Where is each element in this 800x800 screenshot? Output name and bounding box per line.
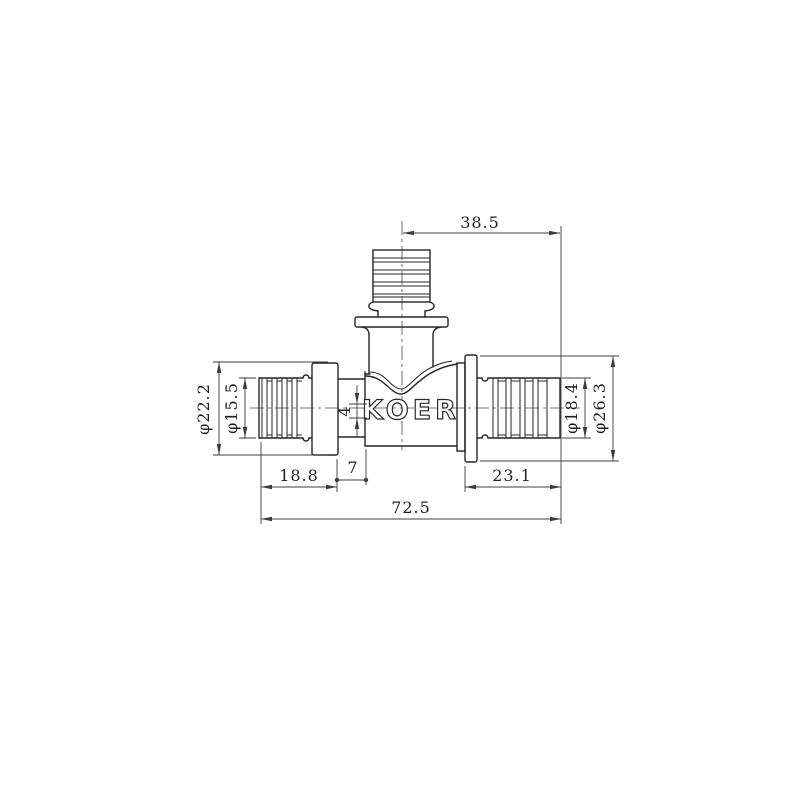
dim-left-outer-diameter: φ22.2 [194, 362, 221, 455]
dim-right-insert-length: 23.1 [465, 466, 561, 489]
dim-label-right-insert-diameter: φ18.4 [562, 382, 581, 434]
top-branch-walls [362, 327, 441, 374]
dim-left-insert-length: 18.8 [261, 466, 337, 489]
dim-label-top-branch-offset: 38.5 [460, 213, 500, 232]
brand-embossed-text: KOER [362, 395, 460, 426]
top-branch-neck [369, 302, 434, 317]
dim-overall-length: 72.5 [261, 498, 561, 521]
dim-label-left-outer-diameter: φ22.2 [194, 383, 213, 435]
dim-label-left-neck-length: 7 [347, 458, 358, 477]
dim-right-outer-diameter: φ26.3 [590, 356, 615, 461]
dim-right-insert-diameter: φ18.4 [562, 378, 587, 438]
saddle-junction-arcs [366, 361, 457, 394]
top-branch-barb [373, 250, 430, 302]
dim-top-branch-offset: 38.5 [403, 213, 560, 235]
top-branch-flange [355, 317, 448, 327]
dim-label-right-insert-length: 23.1 [492, 466, 532, 485]
dim-left-insert-diameter: φ15.5 [222, 378, 247, 438]
dim-label-left-insert-length: 18.8 [279, 466, 319, 485]
drawing-page: KOER [0, 0, 800, 800]
dim-label-overall-length: 72.5 [391, 498, 431, 517]
dim-label-right-outer-diameter: φ26.3 [590, 382, 609, 434]
dim-left-neck-length: 7 [335, 458, 368, 482]
dim-label-left-insert-diameter: φ15.5 [222, 382, 241, 434]
tee-fitting-technical-drawing: KOER [0, 0, 800, 800]
dim-label-wall-step: 4 [335, 405, 354, 416]
extension-lines [213, 226, 619, 524]
right-collar [465, 355, 477, 462]
dimensions: 38.5 72.5 18.8 7 23.1 [194, 213, 619, 524]
